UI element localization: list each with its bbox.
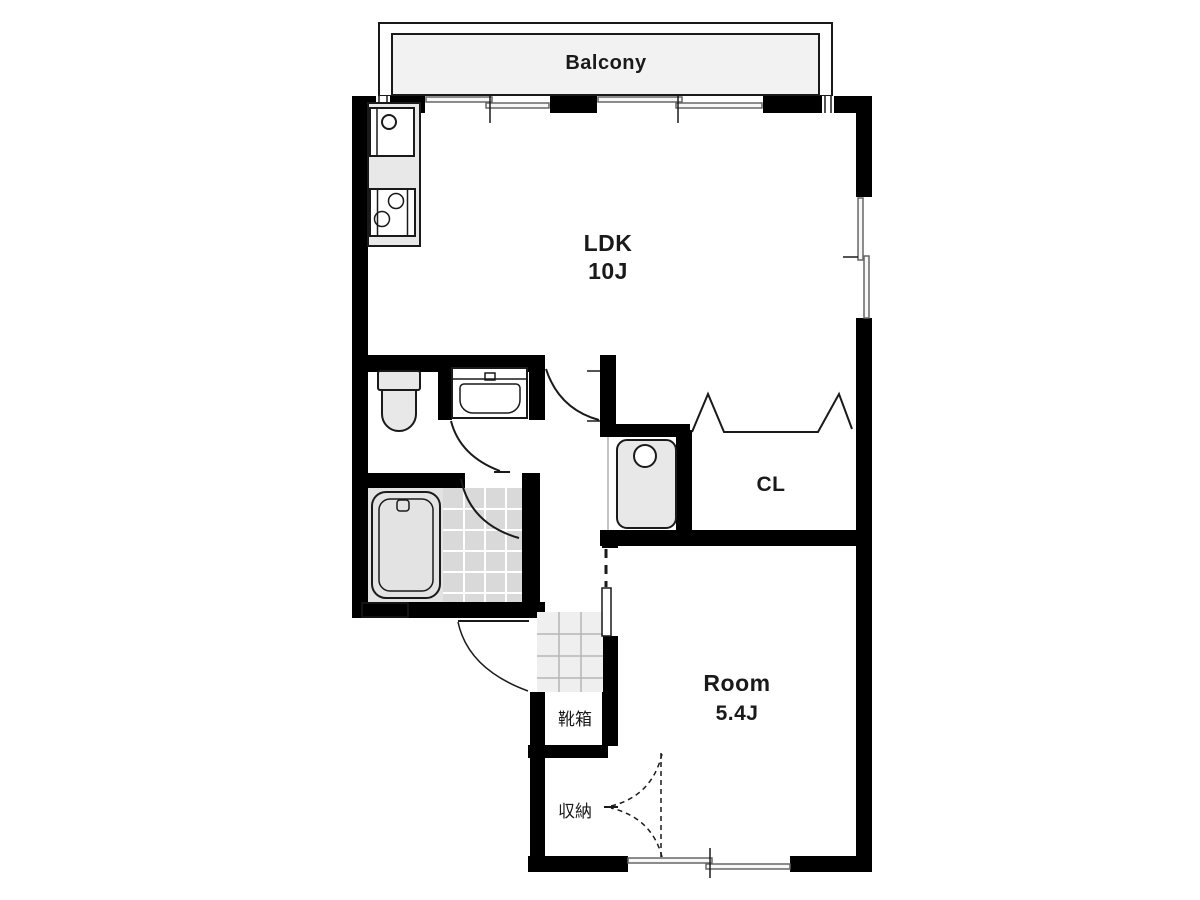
- entrance-tile-floor: [537, 612, 603, 692]
- toilet-tank: [378, 371, 420, 390]
- window-room-south: [628, 848, 790, 878]
- wall-room-left: [602, 636, 618, 746]
- wall-bottom-right: [790, 856, 872, 872]
- wall-washroom-right: [529, 355, 545, 420]
- wall-bottom-left: [528, 856, 628, 872]
- floor-plan-page: Balcony: [0, 0, 1200, 900]
- door-closet-folding: [692, 394, 852, 432]
- wall-toilet-divider: [438, 355, 452, 420]
- faucet-icon: [382, 115, 396, 129]
- balcony-divider-right: [822, 96, 834, 113]
- door-room-sliding: [602, 549, 611, 636]
- door-toilet: [451, 421, 510, 472]
- bathroom: [368, 488, 522, 602]
- ldk-size-label: 10J: [588, 258, 628, 284]
- toilet-bowl: [382, 390, 416, 431]
- shoe-cabinet-label: 靴箱: [558, 710, 592, 729]
- kitchen: [368, 103, 420, 246]
- balcony: Balcony: [379, 23, 832, 96]
- balcony-label: Balcony: [565, 52, 647, 74]
- bath-tile-floor: [443, 488, 522, 602]
- wall-bath-right: [522, 473, 540, 615]
- ldk-label: LDK: [584, 230, 633, 256]
- gas-stove: [370, 189, 415, 236]
- storage-label: 収納: [558, 802, 592, 821]
- wall-corridor-pier: [600, 355, 616, 433]
- door-storage-double: [604, 753, 662, 858]
- washbasin-vanity: [452, 368, 527, 418]
- washing-machine-pan: [608, 437, 676, 530]
- wall-bath-top: [352, 473, 465, 488]
- room-size-label: 5.4J: [716, 702, 759, 725]
- wall-room-top: [600, 530, 872, 546]
- toilet: [378, 371, 420, 431]
- wall-room-left-stub: [602, 530, 618, 548]
- walls: [352, 96, 872, 872]
- wall-genkan-left: [530, 692, 545, 870]
- window-ldk-east: [843, 197, 872, 318]
- window-balcony-left: [425, 95, 550, 123]
- wall-bath-bottom: [352, 602, 545, 618]
- door-hall: [546, 369, 600, 421]
- wall-closet-left: [676, 430, 692, 530]
- door-entrance: [458, 621, 529, 691]
- closet-label: CL: [757, 473, 786, 496]
- room-label: Room: [703, 670, 770, 696]
- window-balcony-right: [597, 95, 763, 123]
- drain-icon: [634, 445, 656, 467]
- floor-plan-canvas: Balcony: [0, 0, 1200, 900]
- kitchen-sink: [370, 108, 414, 156]
